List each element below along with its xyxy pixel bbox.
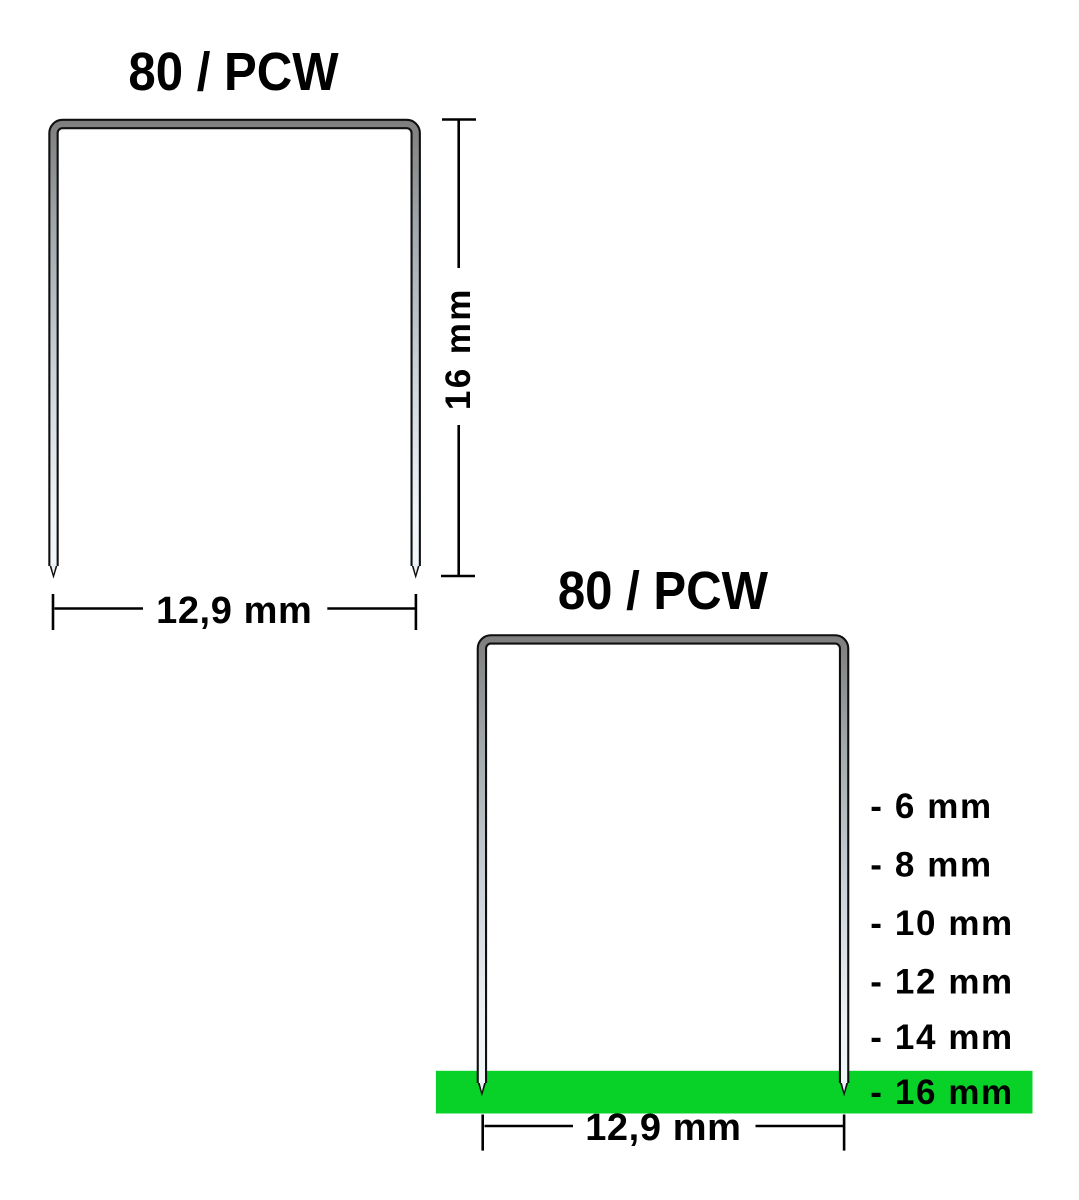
svg-text:- 10 mm: - 10 mm: [870, 904, 1013, 943]
svg-text:12,9 mm: 12,9 mm: [156, 590, 312, 632]
svg-text:- 6 mm: - 6 mm: [870, 787, 992, 826]
svg-text:80 / PCW: 80 / PCW: [128, 41, 338, 102]
svg-text:- 12 mm: - 12 mm: [870, 963, 1013, 1002]
svg-text:- 14 mm: - 14 mm: [870, 1018, 1013, 1057]
svg-text:16 mm: 16 mm: [439, 287, 478, 410]
svg-text:12,9 mm: 12,9 mm: [585, 1107, 741, 1149]
svg-text:80 / PCW: 80 / PCW: [558, 560, 768, 621]
svg-text:- 8 mm: - 8 mm: [870, 846, 992, 885]
svg-text:- 16 mm: - 16 mm: [870, 1073, 1013, 1112]
